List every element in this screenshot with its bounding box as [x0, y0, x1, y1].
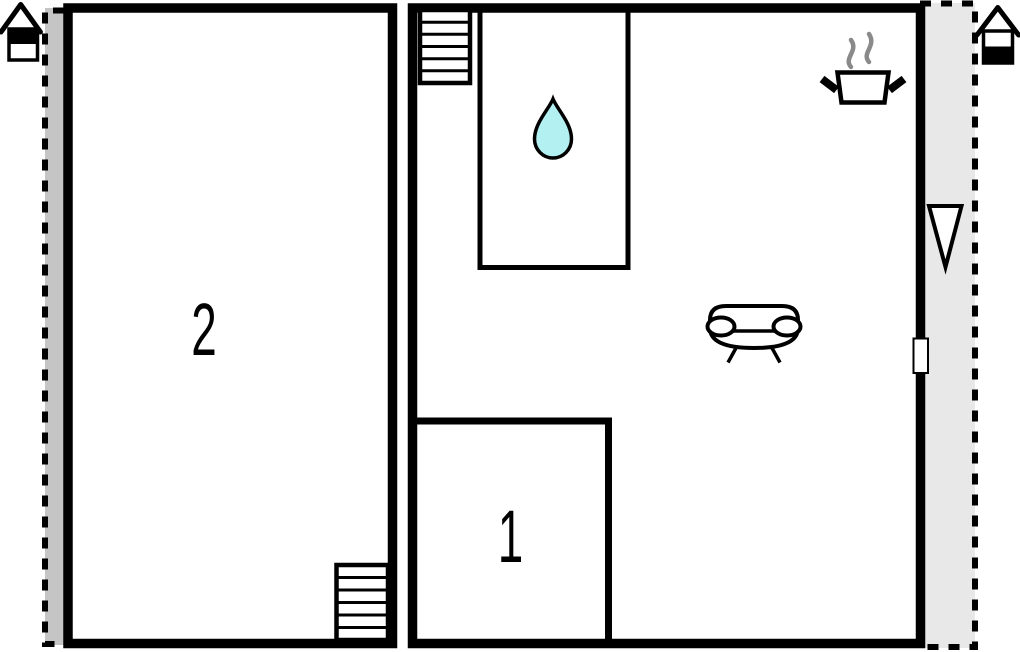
terrace-right [921, 3, 975, 648]
room-2-walls [68, 8, 393, 644]
stairs-upper-icon [420, 10, 470, 83]
pot-body [838, 73, 889, 103]
stairs-lower-icon [337, 565, 389, 640]
floorplan-page: 2 1 [0, 0, 1020, 652]
room-2-label: 2 [191, 289, 217, 372]
door-marker-icon [914, 339, 929, 374]
floorplan-canvas: 2 1 [0, 0, 1020, 652]
room-1-label: 1 [498, 496, 524, 579]
